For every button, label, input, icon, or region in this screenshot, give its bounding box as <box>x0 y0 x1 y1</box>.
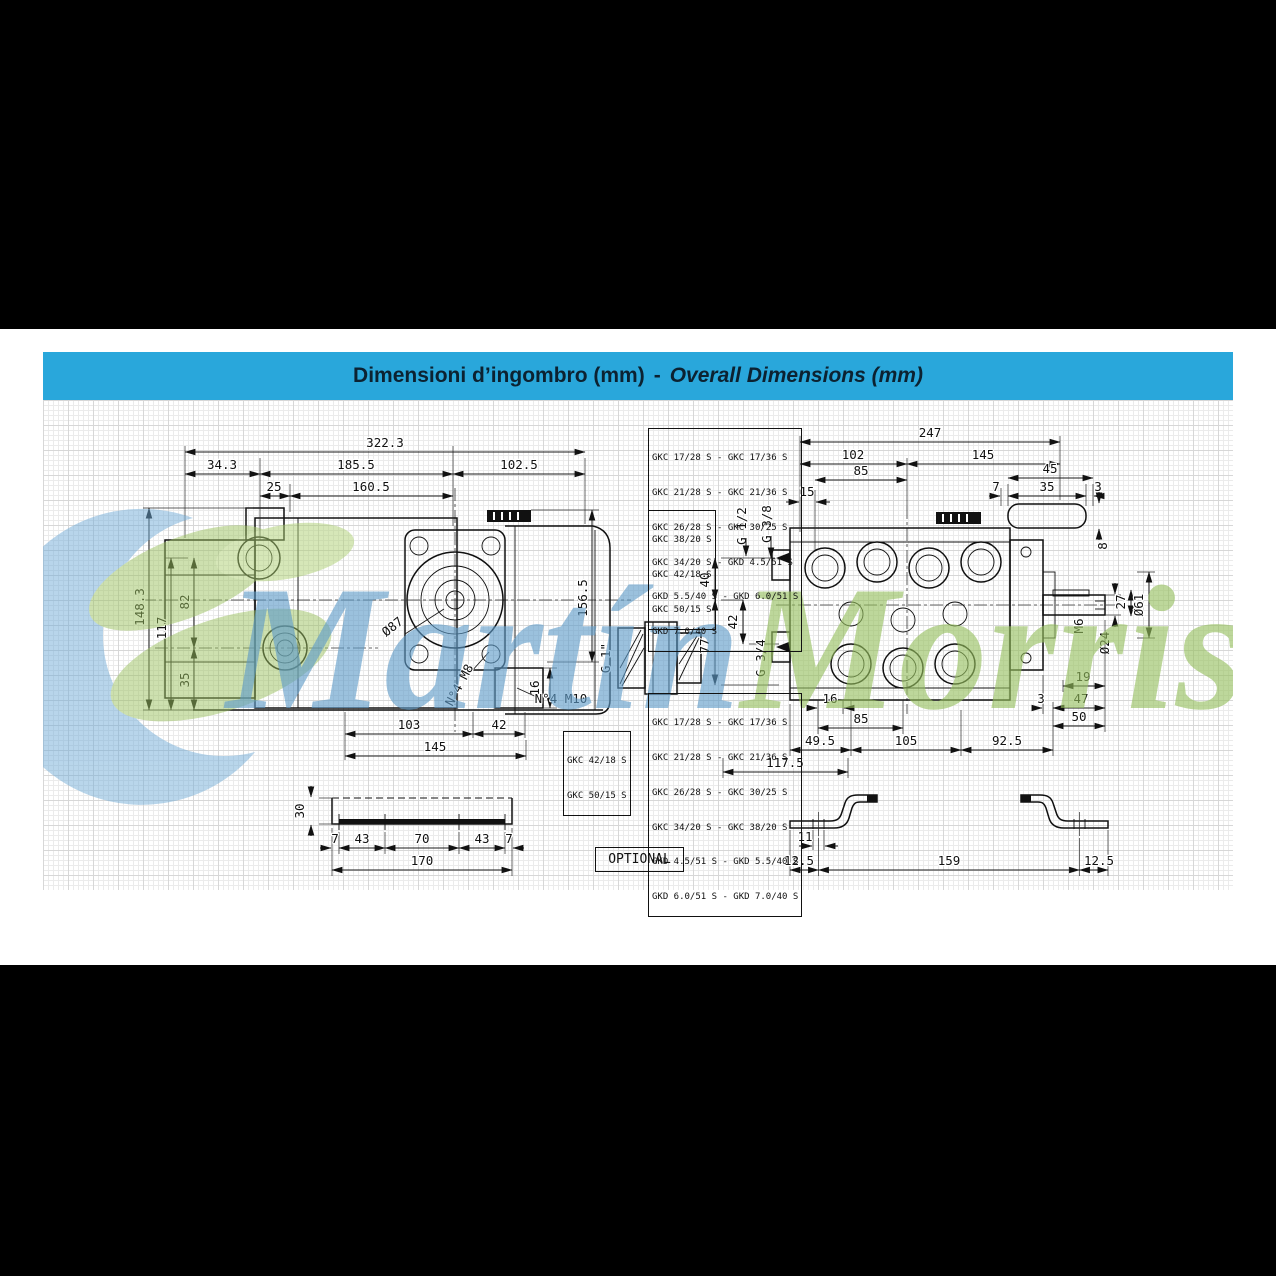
dim-key-7: 7 <box>992 479 1000 494</box>
dim-rail-7a: 7 <box>331 831 339 846</box>
table-row: GKC 42/18 S <box>652 570 712 582</box>
drawing-area: 322.3 34.3 185.5 102.5 25 160.5 148.3 11… <box>43 400 1233 890</box>
table-row: GKD 6.0/51 S - GKD 7.0/40 S <box>652 892 798 904</box>
title-italian: Dimensioni d’ingombro (mm) <box>353 364 645 388</box>
dim-side-185-5: 185.5 <box>337 457 375 472</box>
table-row: GKC 26/28 S - GKC 30/25 S <box>652 788 798 800</box>
title-separator: - <box>654 364 661 388</box>
table-row: GKC 34/20 S - GKC 38/20 S <box>652 823 798 835</box>
dim-top-145: 145 <box>972 447 995 462</box>
dim-rail-43b: 43 <box>474 831 489 846</box>
title-bar: Dimensioni d’ingombro (mm) - Overall Dim… <box>43 352 1233 400</box>
letterbox-bottom <box>0 965 1276 1276</box>
dim-rail-7b: 7 <box>505 831 513 846</box>
watermark-word2: Morris <box>737 549 1233 747</box>
dim-side-102-5: 102.5 <box>500 457 538 472</box>
dim-side-25: 25 <box>266 479 281 494</box>
model-table-bottom-left: GKC 42/18 S GKC 50/15 S <box>563 731 631 816</box>
watermark: MartínMorris <box>43 503 1233 804</box>
table-row: GKC 17/28 S - GKC 17/36 S <box>652 718 798 730</box>
dim-bracket-12-5b: 12.5 <box>1084 853 1114 868</box>
dim-top-247: 247 <box>919 425 942 440</box>
dim-key-3: 3 <box>1094 479 1102 494</box>
dim-rail-43a: 43 <box>354 831 369 846</box>
model-table-bottom: GKC 17/28 S - GKC 17/36 S GKC 21/28 S - … <box>648 693 802 917</box>
table-row: GKC 38/20 S <box>652 535 712 547</box>
optional-label: OPTIONAL <box>608 852 671 867</box>
table-row: GKC 21/28 S - GKC 21/36 S <box>652 488 798 500</box>
dim-rail-170: 170 <box>411 853 434 868</box>
dim-key-45: 45 <box>1042 461 1057 476</box>
dim-rail-70: 70 <box>414 831 429 846</box>
dim-bracket-159: 159 <box>938 853 961 868</box>
mounting-bracket-view: 11 12.5 159 12.5 <box>784 795 1114 876</box>
dim-top-85: 85 <box>853 463 868 478</box>
dim-key-35: 35 <box>1039 479 1054 494</box>
key-slot-detail <box>1008 504 1086 528</box>
dim-side-total: 322.3 <box>366 435 404 450</box>
dim-side-160-5: 160.5 <box>352 479 390 494</box>
letterbox-top <box>0 0 1276 329</box>
table-row: GKC 21/28 S - GKC 21/36 S <box>652 753 798 765</box>
table-row: GKC 50/15 S <box>652 605 712 617</box>
table-row: GKC 42/18 S <box>567 756 627 768</box>
dim-top-102: 102 <box>842 447 865 462</box>
title-english: Overall Dimensions (mm) <box>670 364 923 388</box>
table-row: GKC 50/15 S <box>567 791 627 803</box>
model-table-side: GKC 38/20 S GKC 42/18 S GKC 50/15 S <box>648 510 716 630</box>
table-row: GKC 17/28 S - GKC 17/36 S <box>652 453 798 465</box>
optional-label-box: OPTIONAL <box>595 847 684 872</box>
technical-drawing: 322.3 34.3 185.5 102.5 25 160.5 148.3 11… <box>43 400 1233 890</box>
dim-side-34-3: 34.3 <box>207 457 237 472</box>
dim-rail-30: 30 <box>292 803 307 818</box>
mounting-rail-view: 30 7 43 70 43 7 170 <box>292 786 524 876</box>
